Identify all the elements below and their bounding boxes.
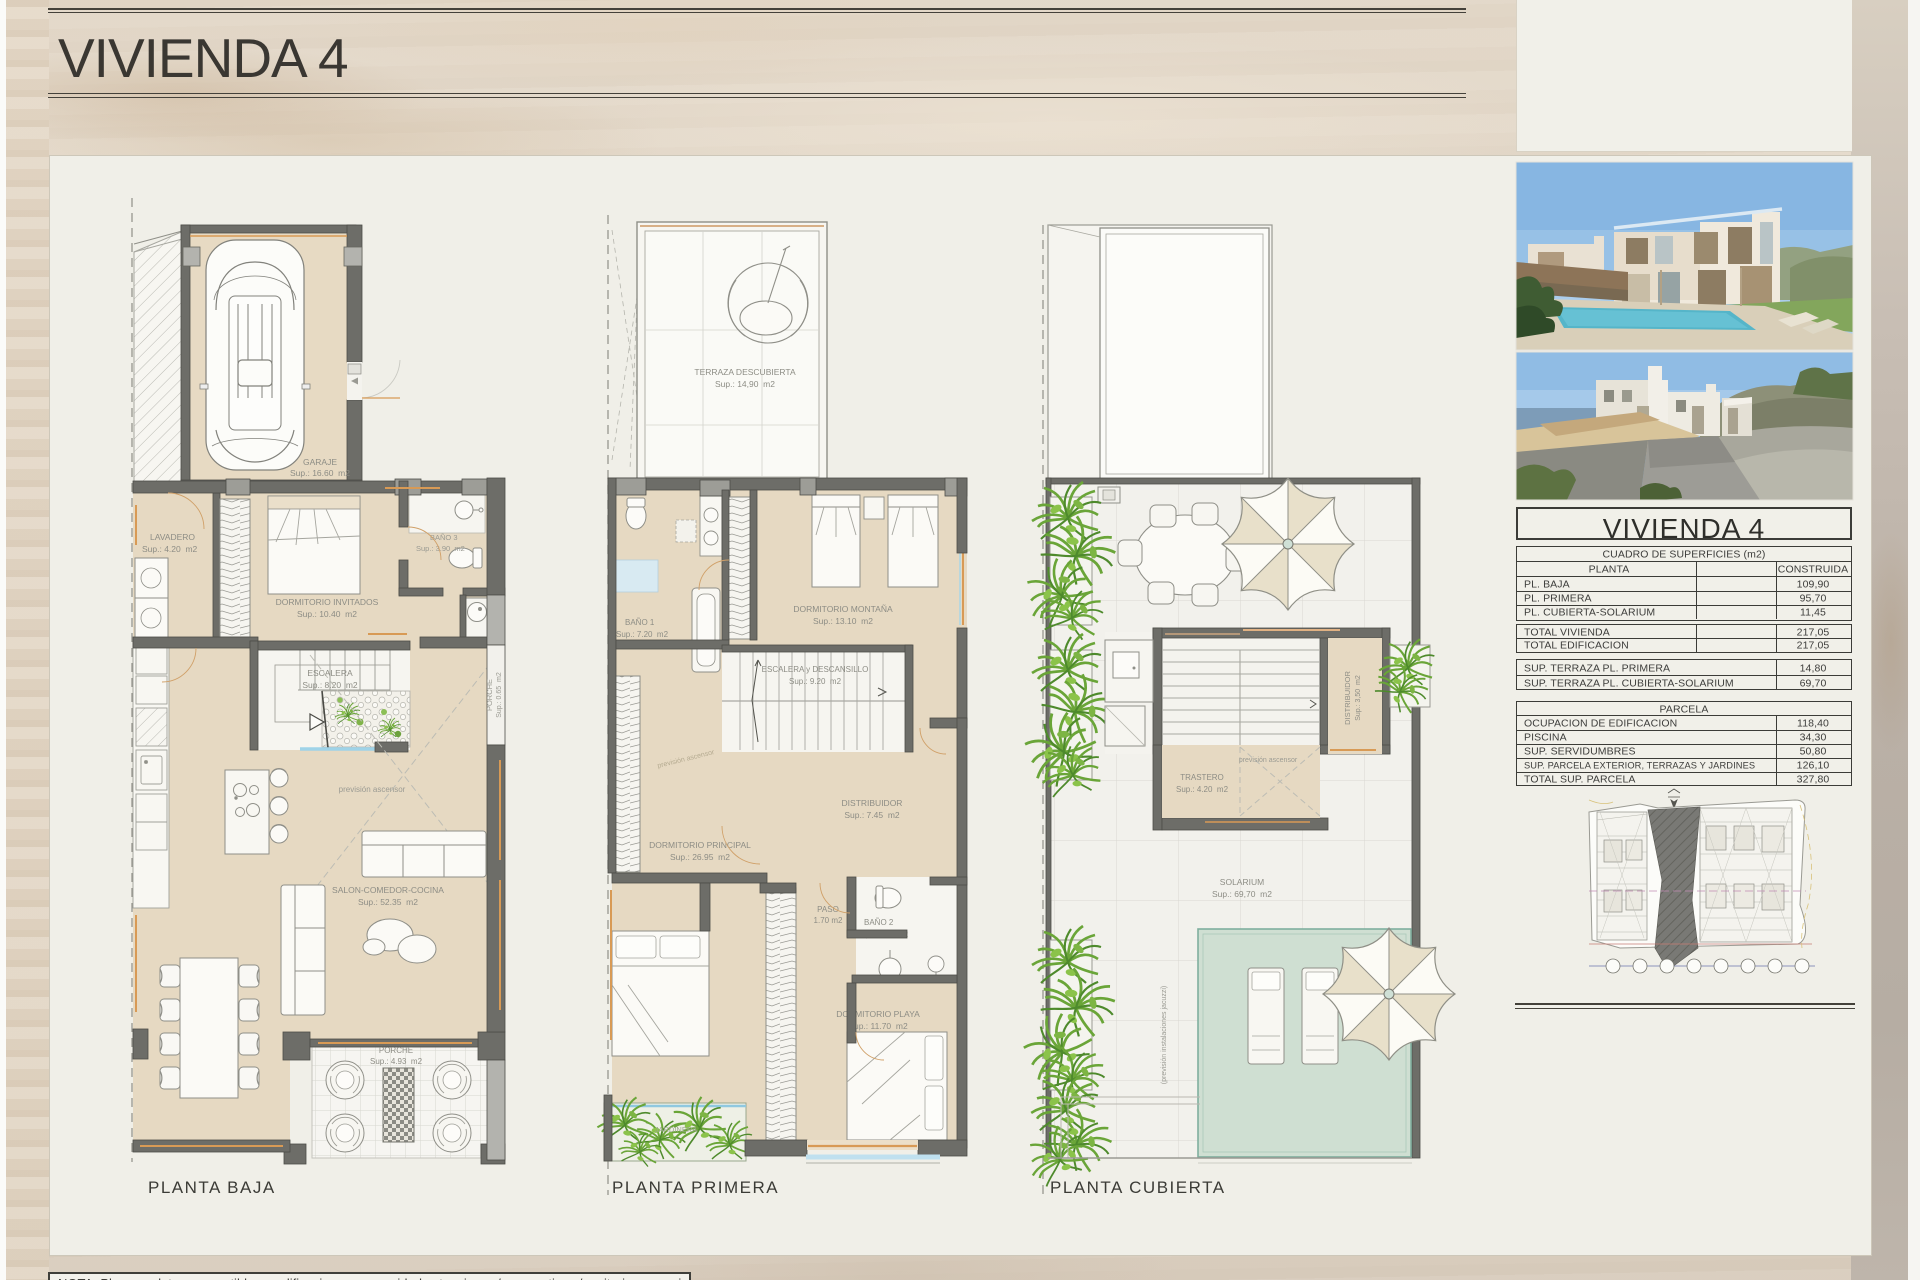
svg-text:Sup.: 11.70 m2: Sup.: 11.70 m2 (848, 1021, 908, 1031)
svg-text:Sup.: 26.95 m2: Sup.: 26.95 m2 (670, 852, 730, 862)
svg-text:Sup.: 4.20 m2: Sup.: 4.20 m2 (142, 544, 198, 554)
svg-text:PORCHE: PORCHE (485, 679, 494, 711)
svg-text:TERRAZA DESCUBIERTA: TERRAZA DESCUBIERTA (694, 367, 796, 377)
svg-text:Sup.: 16.60 m2: Sup.: 16.60 m2 (290, 468, 350, 478)
svg-text:BAÑO 3: BAÑO 3 (430, 533, 458, 542)
svg-text:Sup.: 4.93 m2: Sup.: 4.93 m2 (370, 1057, 423, 1066)
svg-text:Sup.: 52.35 m2: Sup.: 52.35 m2 (358, 897, 418, 907)
svg-text:ESCALERA: ESCALERA (307, 668, 353, 678)
svg-text:DORMITORIO PRINCIPAL: DORMITORIO PRINCIPAL (649, 840, 751, 850)
svg-text:Sup.: 13.10 m2: Sup.: 13.10 m2 (813, 616, 873, 626)
svg-text:1.70 m2: 1.70 m2 (814, 916, 843, 925)
svg-text:DORMITORIO MONTAÑA: DORMITORIO MONTAÑA (793, 604, 893, 614)
svg-text:previsión ascensor: previsión ascensor (1239, 757, 1298, 764)
svg-text:Sup.: 7.20 m2: Sup.: 7.20 m2 (616, 630, 669, 639)
svg-text:TRASTERO: TRASTERO (1180, 773, 1224, 782)
svg-text:PORCHE: PORCHE (379, 1046, 413, 1055)
svg-text:SOLARIUM: SOLARIUM (1220, 877, 1264, 887)
svg-text:GARAJE: GARAJE (303, 457, 337, 467)
svg-text:previsión ascensor: previsión ascensor (339, 785, 406, 794)
svg-text:Sup.: 7.45 m2: Sup.: 7.45 m2 (844, 810, 900, 820)
svg-text:Sup.: 4.20 m2: Sup.: 4.20 m2 (1176, 785, 1229, 794)
svg-text:Sup.: 69,70 m2: Sup.: 69,70 m2 (1212, 889, 1272, 899)
svg-text:DISTRIBUIDOR: DISTRIBUIDOR (1343, 671, 1352, 725)
svg-text:(previsión instalaciones jacuz: (previsión instalaciones jacuzzi) (1161, 986, 1168, 1084)
svg-text:DISTRIBUIDOR: DISTRIBUIDOR (842, 798, 903, 808)
svg-text:BAÑO 2: BAÑO 2 (864, 918, 894, 927)
svg-text:LAVADERO: LAVADERO (150, 532, 195, 542)
svg-text:Sup.: 14,90 m2: Sup.: 14,90 m2 (715, 379, 775, 389)
svg-text:JARDINERA: JARDINERA (655, 1125, 698, 1134)
svg-text:SALON-COMEDOR-COCINA: SALON-COMEDOR-COCINA (332, 885, 444, 895)
svg-text:ESCALERA y DESCANSILLO: ESCALERA y DESCANSILLO (762, 665, 869, 674)
svg-text:BAÑO 1: BAÑO 1 (625, 618, 655, 627)
svg-text:Sup.: 10.40 m2: Sup.: 10.40 m2 (297, 609, 357, 619)
svg-text:Sup.: 3,50 m2: Sup.: 3,50 m2 (1355, 675, 1362, 721)
svg-text:Sup.: 9.20 m2: Sup.: 9.20 m2 (789, 677, 842, 686)
svg-text:Sup.: 0.65 m2: Sup.: 0.65 m2 (496, 672, 503, 718)
svg-text:DORMITORIO INVITADOS: DORMITORIO INVITADOS (276, 597, 379, 607)
